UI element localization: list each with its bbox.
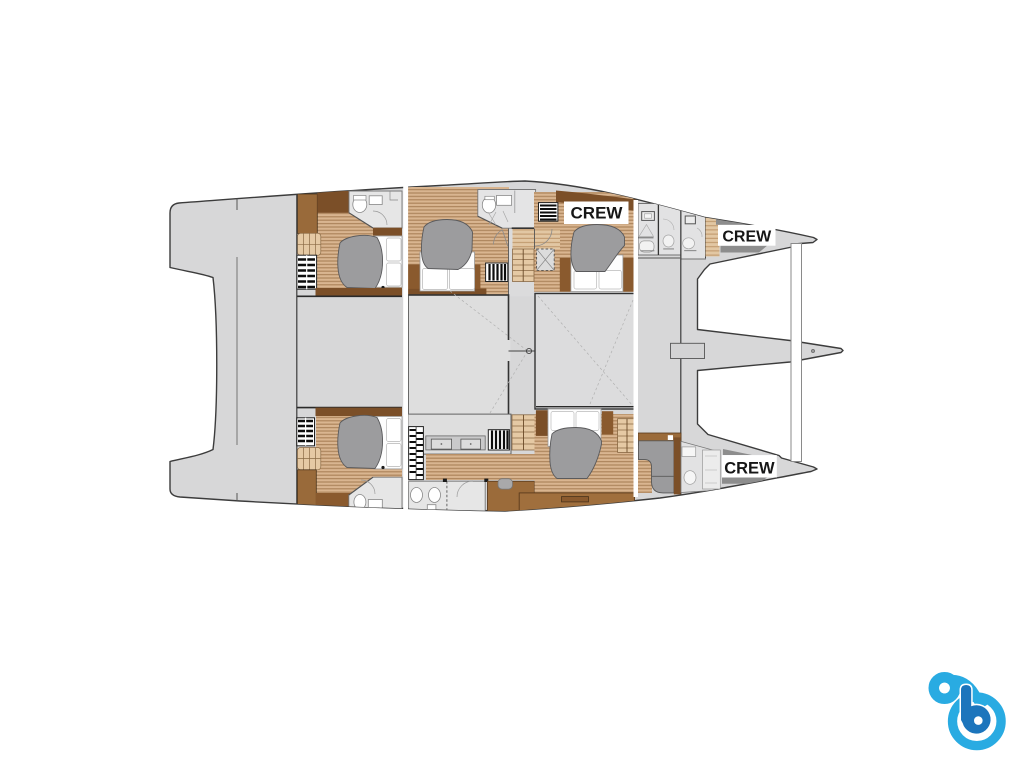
svg-text:CREW: CREW [571,204,624,223]
svg-text:CREW: CREW [722,229,772,246]
svg-text:CREW: CREW [724,460,775,478]
